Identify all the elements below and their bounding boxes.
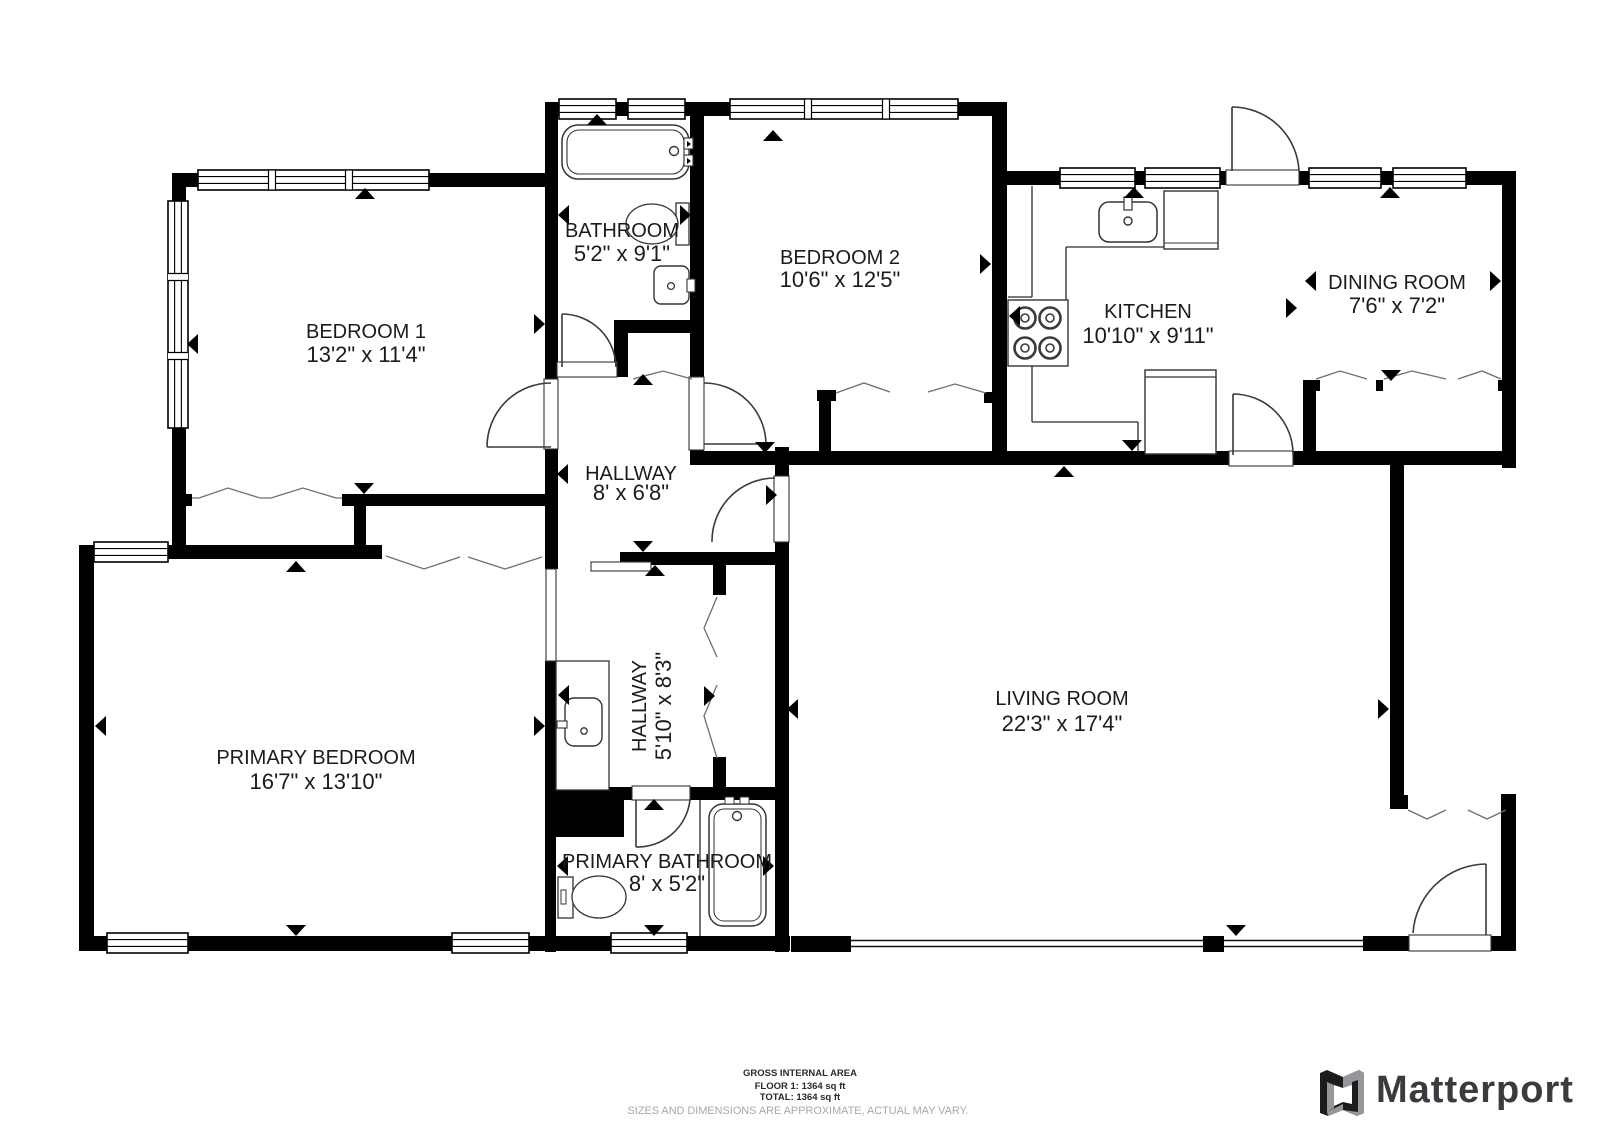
svg-text:PRIMARY BATHROOM: PRIMARY BATHROOM [562,851,772,873]
svg-text:22'3" x 17'4": 22'3" x 17'4" [1002,711,1123,736]
svg-text:TOTAL: 1364 sq ft: TOTAL: 1364 sq ft [760,1092,841,1103]
svg-text:HALLWAY: HALLWAY [629,660,651,752]
svg-text:LIVING ROOM: LIVING ROOM [995,688,1128,710]
svg-text:BEDROOM 1: BEDROOM 1 [306,321,426,343]
svg-text:5'2" x 9'1": 5'2" x 9'1" [574,241,670,266]
svg-text:8' x 5'2": 8' x 5'2" [629,871,705,896]
svg-text:PRIMARY BEDROOM: PRIMARY BEDROOM [216,747,415,769]
svg-text:KITCHEN: KITCHEN [1104,301,1192,323]
svg-text:DINING ROOM: DINING ROOM [1328,272,1466,294]
svg-text:13'2" x 11'4": 13'2" x 11'4" [306,342,425,367]
svg-text:GROSS INTERNAL AREA: GROSS INTERNAL AREA [743,1068,857,1079]
svg-text:8' x 6'8": 8' x 6'8" [593,480,669,505]
svg-text:SIZES AND DIMENSIONS ARE APPRO: SIZES AND DIMENSIONS ARE APPROXIMATE, AC… [628,1105,969,1117]
svg-text:10'6" x 12'5": 10'6" x 12'5" [780,267,901,292]
svg-text:BEDROOM 2: BEDROOM 2 [780,247,900,269]
svg-text:16'7" x 13'10": 16'7" x 13'10" [250,769,383,794]
svg-text:Matterport: Matterport [1376,1069,1574,1111]
svg-text:10'10" x 9'11": 10'10" x 9'11" [1082,323,1213,348]
svg-text:5'10" x 8'3": 5'10" x 8'3" [651,652,676,760]
svg-text:BATHROOM: BATHROOM [565,220,679,242]
svg-text:FLOOR 1: 1364 sq ft: FLOOR 1: 1364 sq ft [755,1081,847,1092]
svg-text:7'6" x 7'2": 7'6" x 7'2" [1349,293,1445,318]
